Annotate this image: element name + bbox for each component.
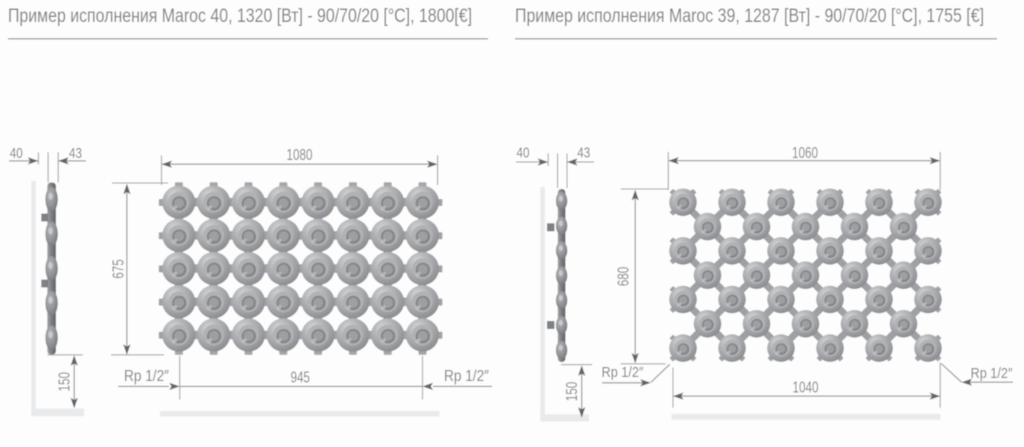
svg-text:Rp 1/2″: Rp 1/2″ [971,365,1014,382]
svg-text:680: 680 [615,267,632,287]
svg-text:Rp 1/2″: Rp 1/2″ [124,368,169,385]
svg-text:40: 40 [517,144,530,161]
svg-text:1040: 1040 [793,379,819,396]
svg-text:945: 945 [290,369,310,386]
svg-text:1080: 1080 [287,147,313,164]
svg-text:Пример исполнения Maroc 40, 13: Пример исполнения Maroc 40, 1320 [Вт] - … [8,6,472,27]
svg-text:150: 150 [564,382,581,402]
svg-text:150: 150 [57,372,74,392]
svg-text:43: 43 [577,144,590,161]
svg-text:675: 675 [110,259,127,279]
svg-text:Rp 1/2″: Rp 1/2″ [602,364,645,381]
svg-text:Пример исполнения Maroc 39, 12: Пример исполнения Maroc 39, 1287 [Вт] - … [515,6,984,27]
svg-text:40: 40 [10,145,23,162]
svg-text:43: 43 [69,145,82,162]
svg-text:Rp 1/2″: Rp 1/2″ [444,368,489,385]
svg-text:1060: 1060 [792,145,818,162]
